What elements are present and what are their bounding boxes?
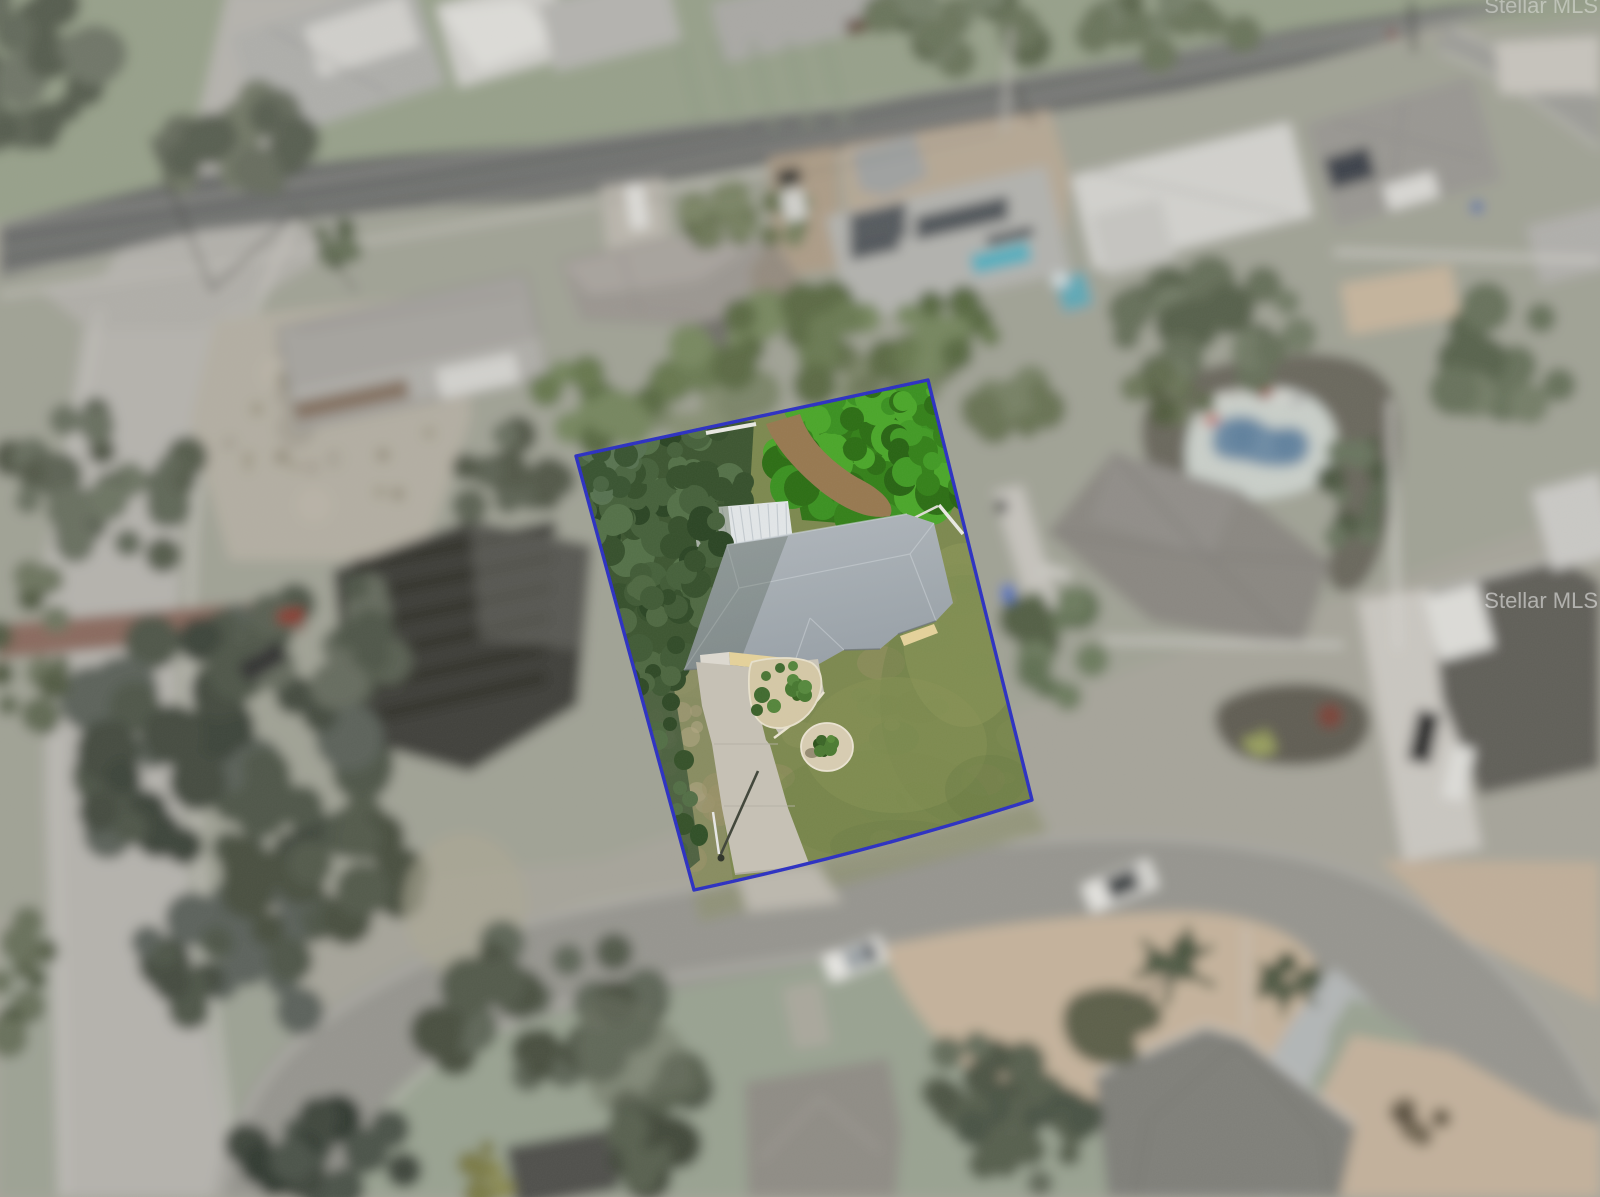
svg-text:Stellar MLS: Stellar MLS [1484, 588, 1598, 613]
svg-text:Stellar MLS: Stellar MLS [1484, 0, 1598, 18]
